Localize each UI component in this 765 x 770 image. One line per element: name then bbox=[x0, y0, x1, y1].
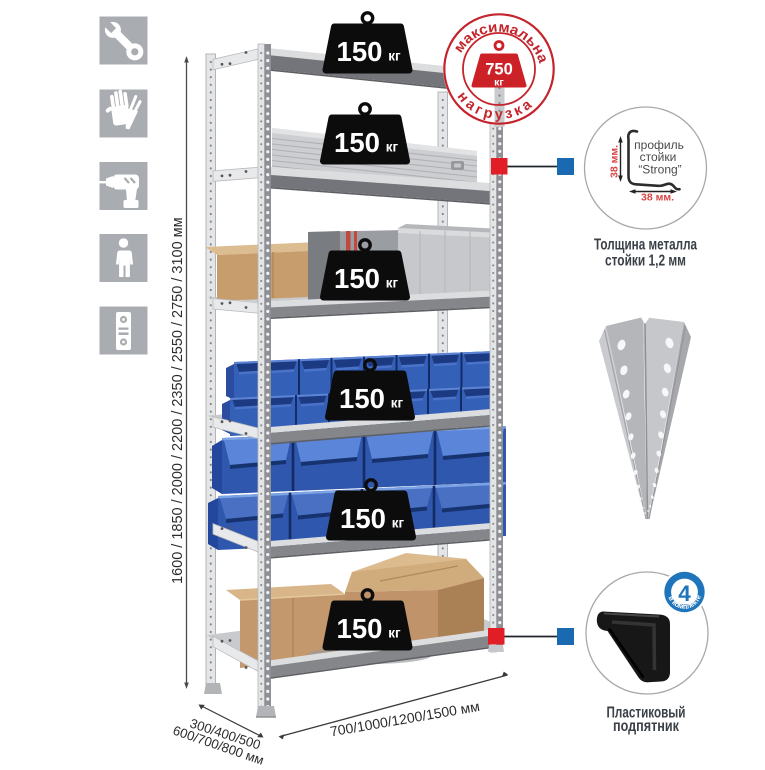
svg-text:“Strong”: “Strong” bbox=[638, 163, 681, 177]
svg-text:кг: кг bbox=[388, 626, 401, 641]
svg-text:стойки 1,2 мм: стойки 1,2 мм bbox=[605, 253, 686, 270]
svg-text:150: 150 bbox=[337, 36, 383, 67]
svg-text:кг: кг bbox=[392, 516, 405, 531]
svg-text:1600 / 1850 / 2000 / 2200 / 23: 1600 / 1850 / 2000 / 2200 / 2350 / 2550 … bbox=[170, 217, 186, 584]
svg-text:кг: кг bbox=[391, 396, 404, 411]
svg-text:кг: кг bbox=[386, 140, 399, 155]
svg-text:кг: кг bbox=[494, 77, 504, 89]
svg-text:38 мм.: 38 мм. bbox=[609, 145, 621, 178]
svg-text:подпятник: подпятник bbox=[613, 718, 679, 735]
svg-text:Толщина металла: Толщина металла bbox=[594, 237, 697, 254]
svg-text:150: 150 bbox=[337, 613, 383, 644]
svg-text:38 мм.: 38 мм. bbox=[641, 192, 674, 204]
svg-text:кг: кг bbox=[388, 49, 401, 64]
svg-text:150: 150 bbox=[339, 383, 385, 414]
svg-text:150: 150 bbox=[334, 263, 380, 294]
svg-text:150: 150 bbox=[334, 127, 380, 158]
svg-text:кг: кг bbox=[386, 276, 399, 291]
svg-text:150: 150 bbox=[340, 503, 386, 534]
